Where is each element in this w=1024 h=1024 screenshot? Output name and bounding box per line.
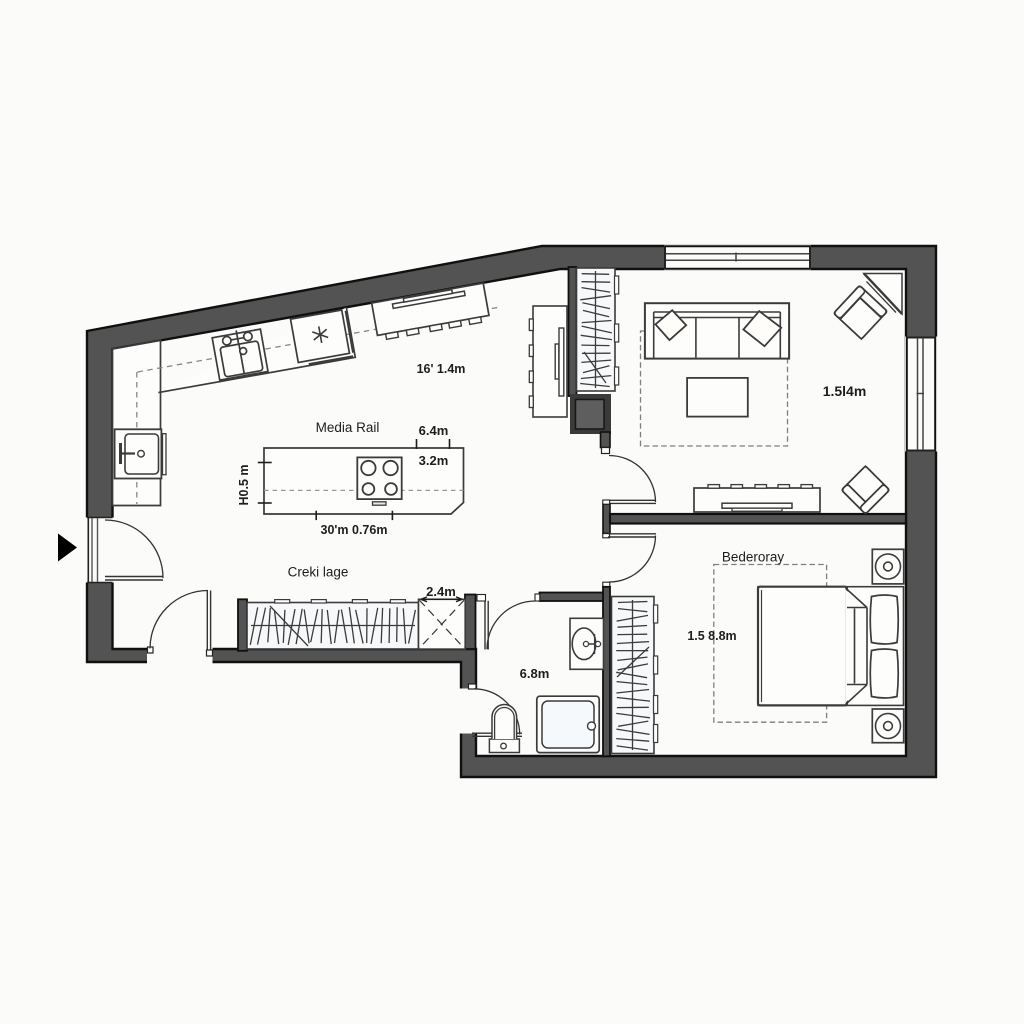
- svg-text:Bederoray: Bederoray: [722, 550, 785, 565]
- svg-text:30'm 0.76m: 30'm 0.76m: [321, 523, 388, 537]
- svg-text:2.4m: 2.4m: [426, 584, 456, 599]
- svg-text:6.8m: 6.8m: [520, 666, 550, 681]
- svg-text:Media Rail: Media Rail: [316, 420, 380, 435]
- svg-text:H0.5 m: H0.5 m: [237, 465, 251, 506]
- svg-text:6.4m: 6.4m: [419, 423, 449, 438]
- svg-text:1.5l4m: 1.5l4m: [823, 383, 867, 399]
- svg-text:3.2m: 3.2m: [419, 453, 449, 468]
- svg-text:16' 1.4m: 16' 1.4m: [417, 362, 466, 376]
- svg-text:1.5 8.8m: 1.5 8.8m: [687, 629, 736, 643]
- svg-text:Creki lage: Creki lage: [288, 565, 349, 580]
